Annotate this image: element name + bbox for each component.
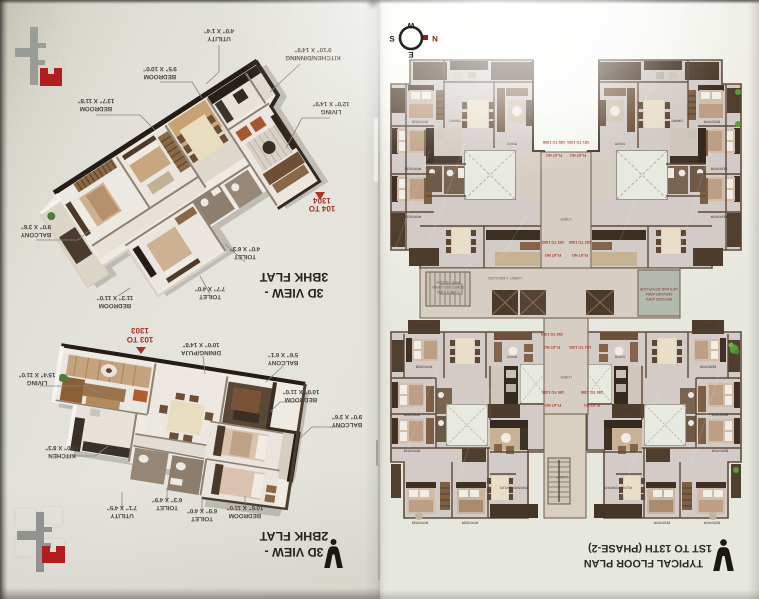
- svg-text:1.400 X 2.400: 1.400 X 2.400: [437, 290, 459, 294]
- svg-text:LIVING15'4" X 11'0": LIVING15'4" X 11'0": [19, 371, 56, 386]
- svg-text:BEDROOM11'3" X 11'0": BEDROOM11'3" X 11'0": [97, 294, 133, 309]
- svg-text:FLAT NO: FLAT NO: [544, 345, 560, 349]
- svg-text:LOBBY: LOBBY: [559, 217, 572, 221]
- svg-text:W: W: [407, 21, 415, 30]
- svg-text:UTILITY7'1" X 4'5": UTILITY7'1" X 4'5": [107, 504, 137, 519]
- svg-text:102 TO 1302: 102 TO 1302: [569, 240, 591, 244]
- svg-text:LOBBY: LOBBY: [555, 475, 568, 479]
- svg-text:S: S: [389, 35, 395, 44]
- svg-text:14TH AND 15TH FLOOR: 14TH AND 15TH FLOOR: [639, 287, 678, 291]
- svg-text:STAIRCASE LOBBY: STAIRCASE LOBBY: [431, 285, 465, 289]
- svg-text:101 TO 1301: 101 TO 1301: [569, 345, 591, 349]
- svg-text:TOILET7'7" X 4'0": TOILET7'7" X 4'0": [195, 285, 225, 300]
- svg-text:KITCHEN10'0" X 8'3": KITCHEN10'0" X 8'3": [45, 444, 79, 459]
- svg-text:BALCONY9'0" X 3'6": BALCONY9'0" X 3'6": [20, 223, 51, 238]
- svg-text:TOILET6'9" X 4'0": TOILET6'9" X 4'0": [187, 507, 217, 522]
- svg-text:103 TO1303: 103 TO1303: [127, 326, 154, 344]
- svg-text:FLAT NO: FLAT NO: [584, 403, 600, 407]
- svg-text:SERVICES AREA: SERVICES AREA: [645, 292, 673, 296]
- svg-text:DINING/PUJA10'0" X 14'8": DINING/PUJA10'0" X 14'8": [181, 341, 221, 356]
- svg-text:BEDROOM9'5" X 10'0": BEDROOM9'5" X 10'0": [143, 65, 177, 80]
- svg-text:3D VIEW -2BHK FLAT: 3D VIEW -2BHK FLAT: [259, 529, 328, 559]
- svg-text:FLAT NO: FLAT NO: [545, 253, 561, 257]
- svg-text:LOBBY 1.400X3.200: LOBBY 1.400X3.200: [488, 276, 521, 280]
- svg-text:106 TO 1306: 106 TO 1306: [581, 390, 603, 394]
- svg-text:N: N: [432, 35, 438, 44]
- svg-text:104 TO 1304: 104 TO 1304: [540, 332, 563, 336]
- svg-text:LOBBY: LOBBY: [559, 375, 572, 379]
- svg-text:TOILET4'0" X 6'3": TOILET4'0" X 6'3": [230, 245, 260, 260]
- svg-text:3D VIEW -3BHK FLAT: 3D VIEW -3BHK FLAT: [259, 270, 328, 300]
- svg-text:BALCONY5'6" X 6'1": BALCONY5'6" X 6'1": [267, 351, 298, 366]
- svg-text:FLAT NO: FLAT NO: [572, 253, 588, 257]
- svg-text:103 TO 1303: 103 TO 1303: [542, 240, 564, 244]
- svg-text:E: E: [408, 50, 414, 59]
- svg-text:105 TO 1305: 105 TO 1305: [542, 390, 564, 394]
- svg-text:FLAT NO: FLAT NO: [545, 403, 561, 407]
- svg-text:TYPICAL FLOOR PLAN1ST TO 13TH: TYPICAL FLOOR PLAN1ST TO 13TH (PHASE-2): [584, 542, 712, 569]
- svg-text:BALCONY9'0" X 3'6": BALCONY9'0" X 3'6": [331, 413, 362, 428]
- svg-text:TOILET6'3" X 4'9": TOILET6'3" X 4'9": [152, 496, 182, 511]
- svg-text:BEDROOM13'7" X 11'8": BEDROOM13'7" X 11'8": [78, 97, 115, 112]
- svg-text:REFUGEE AREA: REFUGEE AREA: [645, 297, 672, 301]
- svg-text:BEDROOM10'0" X 11'0": BEDROOM10'0" X 11'0": [283, 388, 320, 403]
- svg-text:FIRE ESCAPE: FIRE ESCAPE: [436, 280, 460, 284]
- svg-text:104 TO1304: 104 TO1304: [309, 196, 336, 213]
- svg-text:BEDROOM10'6" X 11'0": BEDROOM10'6" X 11'0": [227, 504, 264, 519]
